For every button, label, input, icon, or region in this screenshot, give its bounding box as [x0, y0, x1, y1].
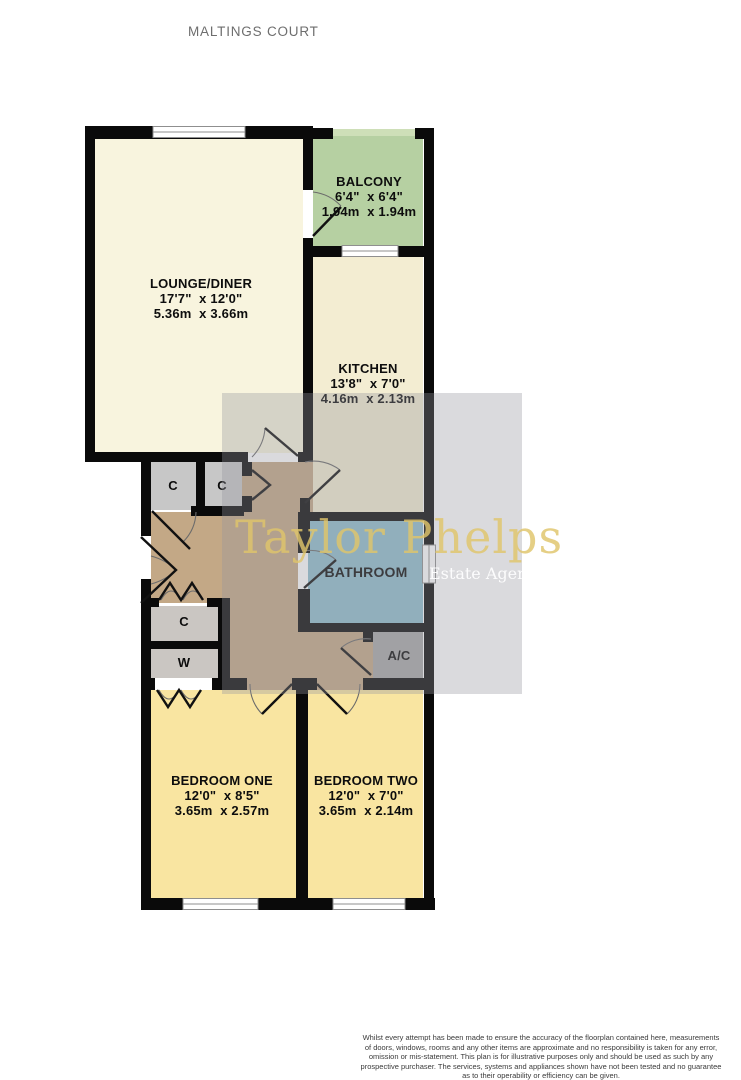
disclaimer-line: Whilst every attempt has been made to en…: [335, 1033, 741, 1043]
balcony-railing: [330, 129, 415, 136]
closet-label: C: [179, 614, 189, 629]
watermark-tagline: Estate Agency: [429, 564, 545, 583]
lounge-label: LOUNGE/DINER17'7" x 12'0"5.36m x 3.66m: [150, 276, 252, 321]
disclaimer-line: of doors, windows, rooms and any other i…: [335, 1043, 741, 1053]
disclaimer-line: as to their operability or efficiency ca…: [335, 1071, 741, 1080]
wardrobe-label: W: [178, 655, 190, 670]
bedroom-two-label: BEDROOM TWO12'0" x 7'0"3.65m x 2.14m: [314, 773, 418, 818]
bedroom-one-label: BEDROOM ONE12'0" x 8'5"3.65m x 2.57m: [171, 773, 273, 818]
disclaimer-line: omission or mis-statement. This plan is …: [335, 1052, 741, 1062]
closet-label: C: [168, 478, 178, 493]
balcony-label: BALCONY6'4" x 6'4"1.94m x 1.94m: [322, 174, 417, 219]
disclaimer-line: prospective purchaser. The services, sys…: [335, 1062, 741, 1072]
watermark-brand: Taylor Phelps: [235, 510, 535, 564]
disclaimer: Whilst every attempt has been made to en…: [335, 1033, 741, 1080]
floorplan-page: MALTINGS COURT: [0, 0, 741, 1080]
